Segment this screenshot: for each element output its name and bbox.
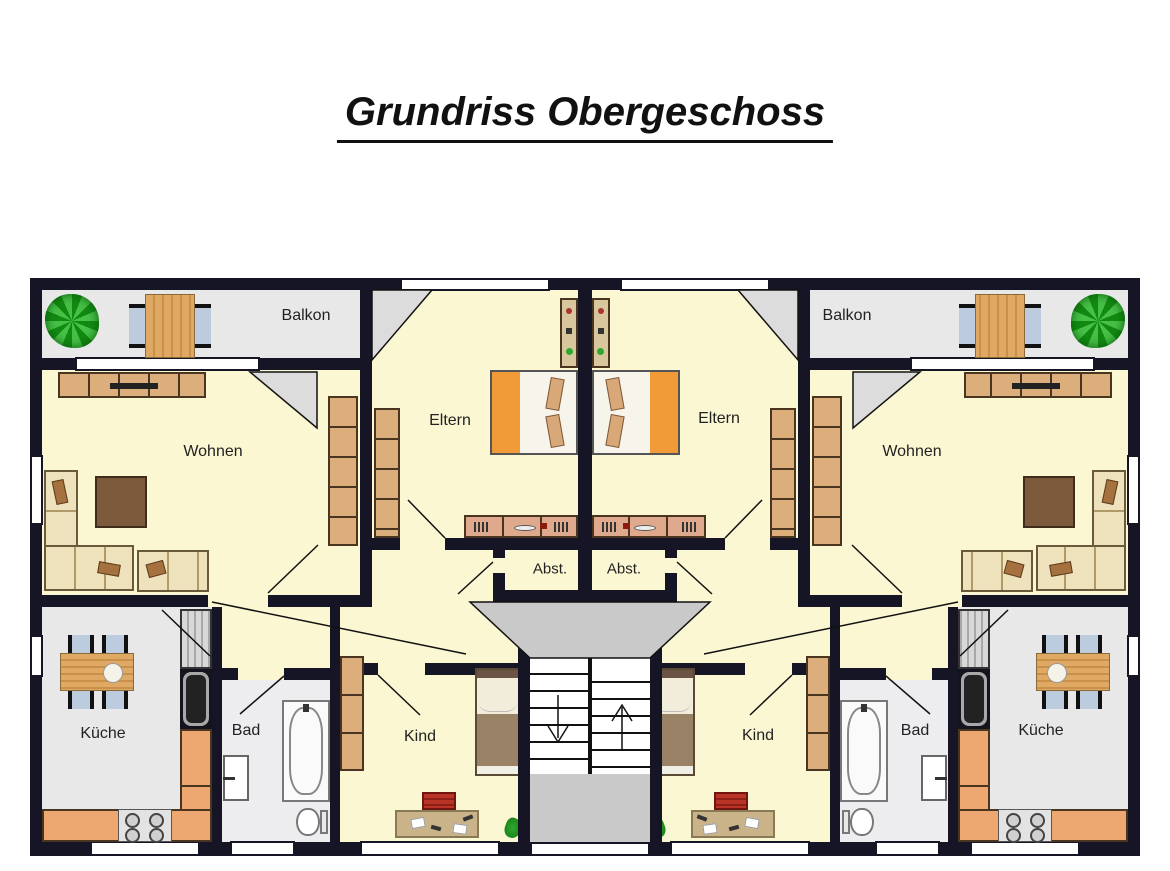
burner xyxy=(1006,813,1021,828)
dining-chair xyxy=(1076,691,1102,709)
label-kueche-left: Küche xyxy=(80,725,125,743)
toilet-tank xyxy=(842,810,850,834)
wall xyxy=(30,278,42,856)
wall xyxy=(592,538,725,550)
books xyxy=(554,522,570,532)
wardrobe xyxy=(806,656,830,771)
dresser xyxy=(464,515,578,538)
wall xyxy=(284,668,330,680)
dining-table xyxy=(60,653,134,691)
label-kind-left: Kind xyxy=(404,728,436,746)
desk xyxy=(691,810,775,838)
burner xyxy=(1030,813,1045,828)
kitchen-counter xyxy=(958,609,990,669)
kitchen-counter xyxy=(180,609,212,669)
bed-blanket xyxy=(650,372,678,453)
wardrobe xyxy=(374,408,400,538)
wall xyxy=(830,607,840,842)
window xyxy=(1127,455,1140,525)
dining-chair xyxy=(1042,635,1068,653)
wardrobe xyxy=(812,396,842,546)
throw-pillow xyxy=(1102,479,1119,505)
throw-pillow xyxy=(1049,561,1073,577)
wall xyxy=(840,668,886,680)
sideboard xyxy=(58,372,206,398)
books xyxy=(680,522,696,532)
wall xyxy=(932,668,948,680)
wall xyxy=(268,595,372,607)
throw-pillow xyxy=(97,561,121,577)
double-bed xyxy=(592,370,680,455)
plate xyxy=(1047,663,1067,683)
label-abst-right: Abst. xyxy=(607,561,641,578)
window xyxy=(875,841,940,856)
paper xyxy=(452,823,467,835)
desk-item xyxy=(729,825,740,831)
window xyxy=(30,455,43,525)
bed-pillow xyxy=(605,377,624,411)
burner xyxy=(149,813,164,828)
label-kind-right: Kind xyxy=(742,727,774,745)
window xyxy=(230,841,295,856)
window xyxy=(1127,635,1140,677)
tap xyxy=(303,704,309,712)
deco xyxy=(597,348,604,355)
double-bed xyxy=(490,370,578,455)
window xyxy=(90,841,200,856)
label-kueche-right: Küche xyxy=(1018,722,1063,740)
stove xyxy=(998,809,1052,842)
window-balcony-door xyxy=(75,357,260,371)
tap xyxy=(223,777,235,780)
coffee-table xyxy=(1023,476,1075,528)
label-balkon-right: Balkon xyxy=(823,307,872,325)
coffee-table xyxy=(95,476,147,528)
balcony-chair xyxy=(959,304,975,348)
wall xyxy=(360,278,372,370)
bed-blanket xyxy=(492,372,520,453)
desk-chair xyxy=(422,792,456,810)
wall xyxy=(445,538,578,550)
bed-pillow xyxy=(545,414,564,448)
dining-table xyxy=(1036,653,1110,691)
plate xyxy=(103,663,123,683)
bed-pillow xyxy=(479,680,517,712)
floor-plan: Grundriss Obergeschoss xyxy=(0,0,1170,871)
label-bad-right: Bad xyxy=(901,722,929,740)
wall-abst xyxy=(665,550,677,558)
landing xyxy=(530,774,650,842)
window xyxy=(30,635,43,677)
dining-chair xyxy=(102,635,128,653)
deco xyxy=(566,308,572,314)
label-balkon-left: Balkon xyxy=(282,307,331,325)
wall xyxy=(1128,278,1140,856)
wardrobe xyxy=(770,408,796,538)
loveseat xyxy=(961,550,1033,592)
tub-basin xyxy=(289,707,323,795)
wall-abst xyxy=(493,550,505,558)
kitchen-sink xyxy=(958,669,990,729)
dresser xyxy=(592,515,706,538)
apartment-left xyxy=(30,278,585,856)
desk-item xyxy=(697,814,708,821)
wall xyxy=(372,538,400,550)
throw-pillow xyxy=(52,479,69,505)
stairs-flight-up xyxy=(592,658,650,774)
stove xyxy=(118,809,172,842)
wall-abst xyxy=(592,590,677,604)
label-eltern-left: Eltern xyxy=(429,412,471,430)
plant-icon xyxy=(45,294,99,348)
bed-pillow xyxy=(605,414,624,448)
loveseat xyxy=(137,550,209,592)
books xyxy=(600,522,616,532)
wall xyxy=(330,607,340,842)
toilet-bowl xyxy=(296,808,320,836)
party-wall xyxy=(578,278,592,604)
burner xyxy=(149,828,164,843)
tv xyxy=(1012,383,1060,389)
window xyxy=(670,841,810,856)
bowl xyxy=(514,525,536,531)
balcony-table xyxy=(145,294,195,358)
deco xyxy=(598,308,604,314)
wall xyxy=(42,595,208,607)
tub-basin xyxy=(847,707,881,795)
deco xyxy=(566,328,572,334)
apartment-right xyxy=(585,278,1140,856)
shelf xyxy=(560,298,578,368)
deco xyxy=(566,348,573,355)
stairs-flight-down xyxy=(530,658,588,774)
wall xyxy=(948,607,958,842)
throw-pillow xyxy=(1003,560,1024,578)
tap xyxy=(935,777,947,780)
child-bed xyxy=(475,668,521,776)
page-title: Grundriss Obergeschoss xyxy=(337,90,833,143)
kitchen-sink xyxy=(180,669,212,729)
deco xyxy=(598,328,604,334)
entrance-opening xyxy=(530,842,650,856)
paper xyxy=(702,823,717,835)
wardrobe xyxy=(328,396,358,546)
burner xyxy=(125,813,140,828)
dining-chair xyxy=(1042,691,1068,709)
sofa xyxy=(1036,545,1126,591)
toilet xyxy=(296,806,330,838)
wall-abst xyxy=(493,590,578,604)
wardrobe xyxy=(340,656,364,771)
sofa xyxy=(44,545,134,591)
dining-chair xyxy=(68,635,94,653)
desk-item xyxy=(463,814,474,821)
wall xyxy=(798,358,810,595)
bowl xyxy=(634,525,656,531)
window xyxy=(360,841,500,856)
window-balcony-door xyxy=(910,357,1095,371)
red-box xyxy=(623,523,630,529)
wall xyxy=(212,607,222,842)
bath-sink xyxy=(223,755,249,801)
toilet-bowl xyxy=(850,808,874,836)
sink-basin xyxy=(186,675,206,723)
window xyxy=(620,278,770,291)
toilet-tank xyxy=(320,810,328,834)
balcony-table xyxy=(975,294,1025,358)
bed-foot xyxy=(477,766,519,774)
bed-blanket xyxy=(477,714,519,766)
dining-chair xyxy=(102,691,128,709)
bath-sink xyxy=(921,755,947,801)
burner xyxy=(1006,828,1021,843)
label-wohnen-left: Wohnen xyxy=(183,443,242,461)
red-box xyxy=(540,523,547,529)
wall xyxy=(798,278,810,370)
wall xyxy=(798,595,902,607)
throw-pillow xyxy=(145,560,166,578)
paper xyxy=(744,817,760,829)
label-bad-left: Bad xyxy=(232,722,260,740)
desk xyxy=(395,810,479,838)
window xyxy=(970,841,1080,856)
shelf xyxy=(592,298,610,368)
desk-chair xyxy=(714,792,748,810)
bathtub xyxy=(282,700,330,802)
wall xyxy=(962,595,1128,607)
toilet xyxy=(840,806,874,838)
sink-basin xyxy=(964,675,984,723)
stairwell-wall xyxy=(518,648,530,842)
books xyxy=(474,522,490,532)
wall xyxy=(360,358,372,595)
sideboard xyxy=(964,372,1112,398)
headboard xyxy=(477,670,519,678)
burner xyxy=(1030,828,1045,843)
bathtub xyxy=(840,700,888,802)
label-wohnen-right: Wohnen xyxy=(882,443,941,461)
wall xyxy=(222,668,238,680)
window xyxy=(400,278,550,291)
bed-pillow xyxy=(545,377,564,411)
dining-chair xyxy=(68,691,94,709)
tap xyxy=(861,704,867,712)
paper xyxy=(410,817,426,829)
burner xyxy=(125,828,140,843)
desk-item xyxy=(431,825,442,831)
wall-abst xyxy=(665,573,677,590)
label-eltern-right: Eltern xyxy=(698,410,740,428)
dining-chair xyxy=(1076,635,1102,653)
label-abst-left: Abst. xyxy=(533,561,567,578)
wall-abst xyxy=(493,573,505,590)
wall xyxy=(770,538,798,550)
stairwell-wall xyxy=(650,648,662,842)
balcony-chair xyxy=(129,304,145,348)
tv xyxy=(110,383,158,389)
balcony-chair xyxy=(1025,304,1041,348)
balcony-chair xyxy=(195,304,211,348)
